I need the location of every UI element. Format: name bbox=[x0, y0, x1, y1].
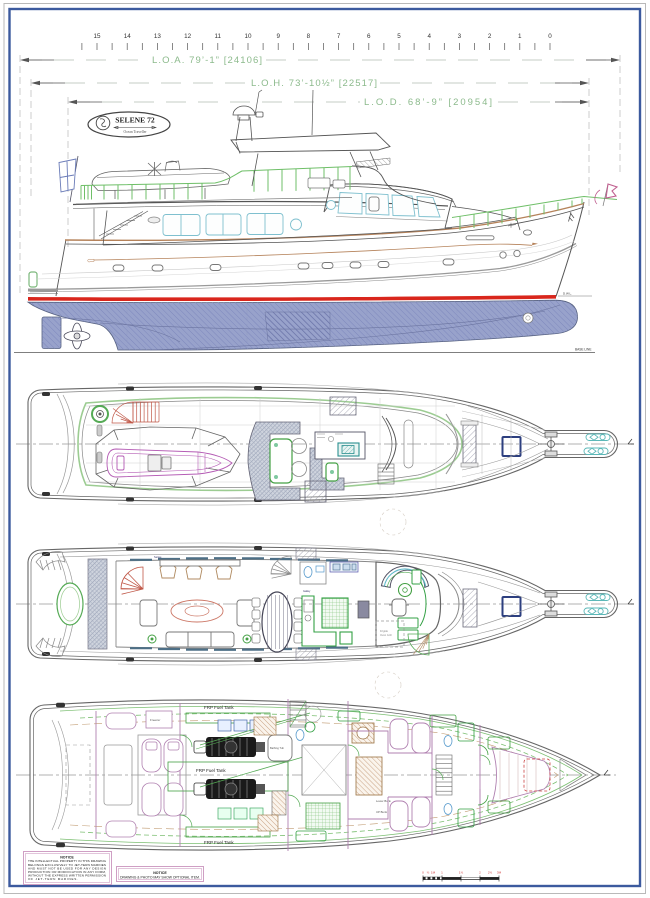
svg-text:FRP Fuel Tank: FRP Fuel Tank bbox=[204, 705, 234, 710]
svg-text:8: 8 bbox=[307, 33, 311, 40]
svg-text:2: 2 bbox=[488, 33, 492, 40]
svg-text:6: 6 bbox=[367, 33, 371, 40]
svg-text:3: 3 bbox=[458, 33, 462, 40]
svg-text:Galley: Galley bbox=[303, 589, 311, 593]
svg-text:L.O.A. 79’-1” [24106]: L.O.A. 79’-1” [24106] bbox=[152, 55, 262, 66]
svg-text:FRP Fuel Tank: FRP Fuel Tank bbox=[196, 768, 226, 773]
svg-text:FRP Fuel Tank: FRP Fuel Tank bbox=[204, 840, 234, 845]
svg-text:Frigide: Frigide bbox=[380, 629, 388, 633]
svg-text:NOTICE: NOTICE bbox=[153, 871, 167, 875]
svg-text:2½: 2½ bbox=[488, 871, 493, 875]
svg-text:Oven Grill: Oven Grill bbox=[380, 633, 392, 637]
svg-text:OF JET-TERN MARINES.: OF JET-TERN MARINES. bbox=[28, 877, 78, 881]
svg-text:L.O.H. 73’-10½” [22517]: L.O.H. 73’-10½” [22517] bbox=[251, 78, 377, 89]
svg-text:9: 9 bbox=[276, 33, 280, 40]
svg-text:10: 10 bbox=[244, 33, 252, 40]
svg-text:D.W.L.: D.W.L. bbox=[563, 292, 572, 296]
svg-text:Freezer: Freezer bbox=[150, 718, 160, 722]
svg-text:Bathing Tub: Bathing Tub bbox=[270, 746, 284, 750]
svg-text:14: 14 bbox=[124, 33, 132, 40]
svg-text:Ocean Traveller: Ocean Traveller bbox=[123, 130, 147, 134]
svg-text:4: 4 bbox=[427, 33, 431, 40]
svg-text:13: 13 bbox=[154, 33, 162, 40]
svg-text:12: 12 bbox=[184, 33, 192, 40]
svg-text:3M: 3M bbox=[497, 871, 502, 875]
svg-text:Settee: Settee bbox=[154, 555, 162, 559]
svg-text:1M: 1M bbox=[431, 871, 436, 875]
svg-text:15: 15 bbox=[93, 33, 101, 40]
svg-text:1½: 1½ bbox=[459, 871, 464, 875]
svg-text:Lower Bunk: Lower Bunk bbox=[376, 799, 391, 803]
svg-text:SELENE 72: SELENE 72 bbox=[115, 116, 155, 125]
svg-text:DRAWING & PHOTO MAY SHOW OPTIO: DRAWING & PHOTO MAY SHOW OPTIONAL ITEM. bbox=[120, 876, 200, 880]
svg-text:1: 1 bbox=[518, 33, 522, 40]
svg-text:L.O.D. 68’-9” [20954]: L.O.D. 68’-9” [20954] bbox=[364, 97, 492, 108]
svg-text:0: 0 bbox=[548, 33, 552, 40]
svg-text:5: 5 bbox=[397, 33, 401, 40]
svg-text:UP Bunk: UP Bunk bbox=[376, 810, 388, 814]
svg-text:7: 7 bbox=[337, 33, 341, 40]
svg-text:BASE LINE: BASE LINE bbox=[575, 348, 591, 352]
svg-text:11: 11 bbox=[215, 33, 222, 40]
